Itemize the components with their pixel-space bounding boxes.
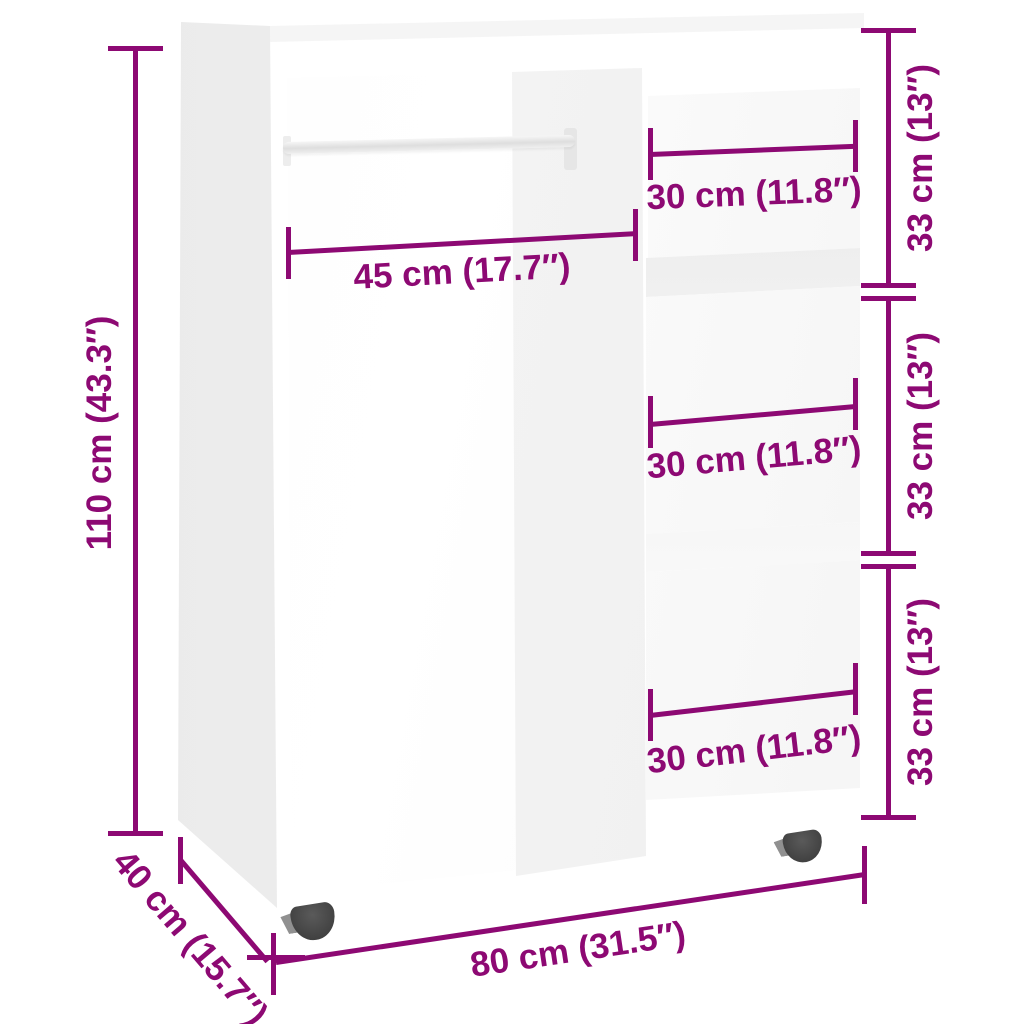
dimension-tick	[862, 846, 867, 904]
wheel-front-left	[279, 901, 337, 949]
wheel-tyre	[289, 901, 338, 943]
dimension-tick	[853, 378, 858, 430]
dimension-tick	[633, 209, 638, 261]
dimension-tick	[178, 837, 183, 884]
dimension-tick	[853, 663, 858, 715]
dimension-line	[886, 566, 891, 817]
dimension-tick	[861, 564, 916, 569]
product-dimension-diagram: 110 cm (43.3″) 45 cm (17.7″) 30 cm (11.8…	[0, 0, 1024, 1024]
dimension-tick	[861, 815, 916, 820]
dimension-tick	[853, 120, 858, 172]
dimension-tick	[861, 28, 916, 33]
wheel-tyre	[782, 828, 825, 865]
dimension-label-width: 80 cm (31.5″)	[468, 914, 689, 986]
dimension-line	[886, 298, 891, 553]
dimension-tick	[648, 396, 653, 448]
dimension-label-middle-compartment-height: 33 cm (13″)	[901, 332, 941, 520]
dimension-tick	[861, 551, 916, 556]
dimension-tick	[648, 689, 653, 741]
dimension-label-bottom-compartment-height: 33 cm (13″)	[901, 598, 941, 786]
dimension-tick	[108, 46, 163, 51]
wheel-front-right	[773, 828, 826, 869]
dimension-tick	[861, 283, 916, 288]
dimension-label-height: 110 cm (43.3″)	[80, 316, 120, 551]
dimension-tick	[247, 955, 305, 960]
dimension-tick	[861, 296, 916, 301]
dimension-tick	[271, 933, 276, 995]
dimension-line	[886, 30, 891, 285]
dimension-label-top-compartment-height: 33 cm (13″)	[901, 64, 941, 252]
dimension-tick	[648, 128, 653, 180]
dimension-tick	[286, 227, 291, 279]
dimension-line	[133, 48, 138, 835]
dimension-tick	[108, 831, 163, 836]
